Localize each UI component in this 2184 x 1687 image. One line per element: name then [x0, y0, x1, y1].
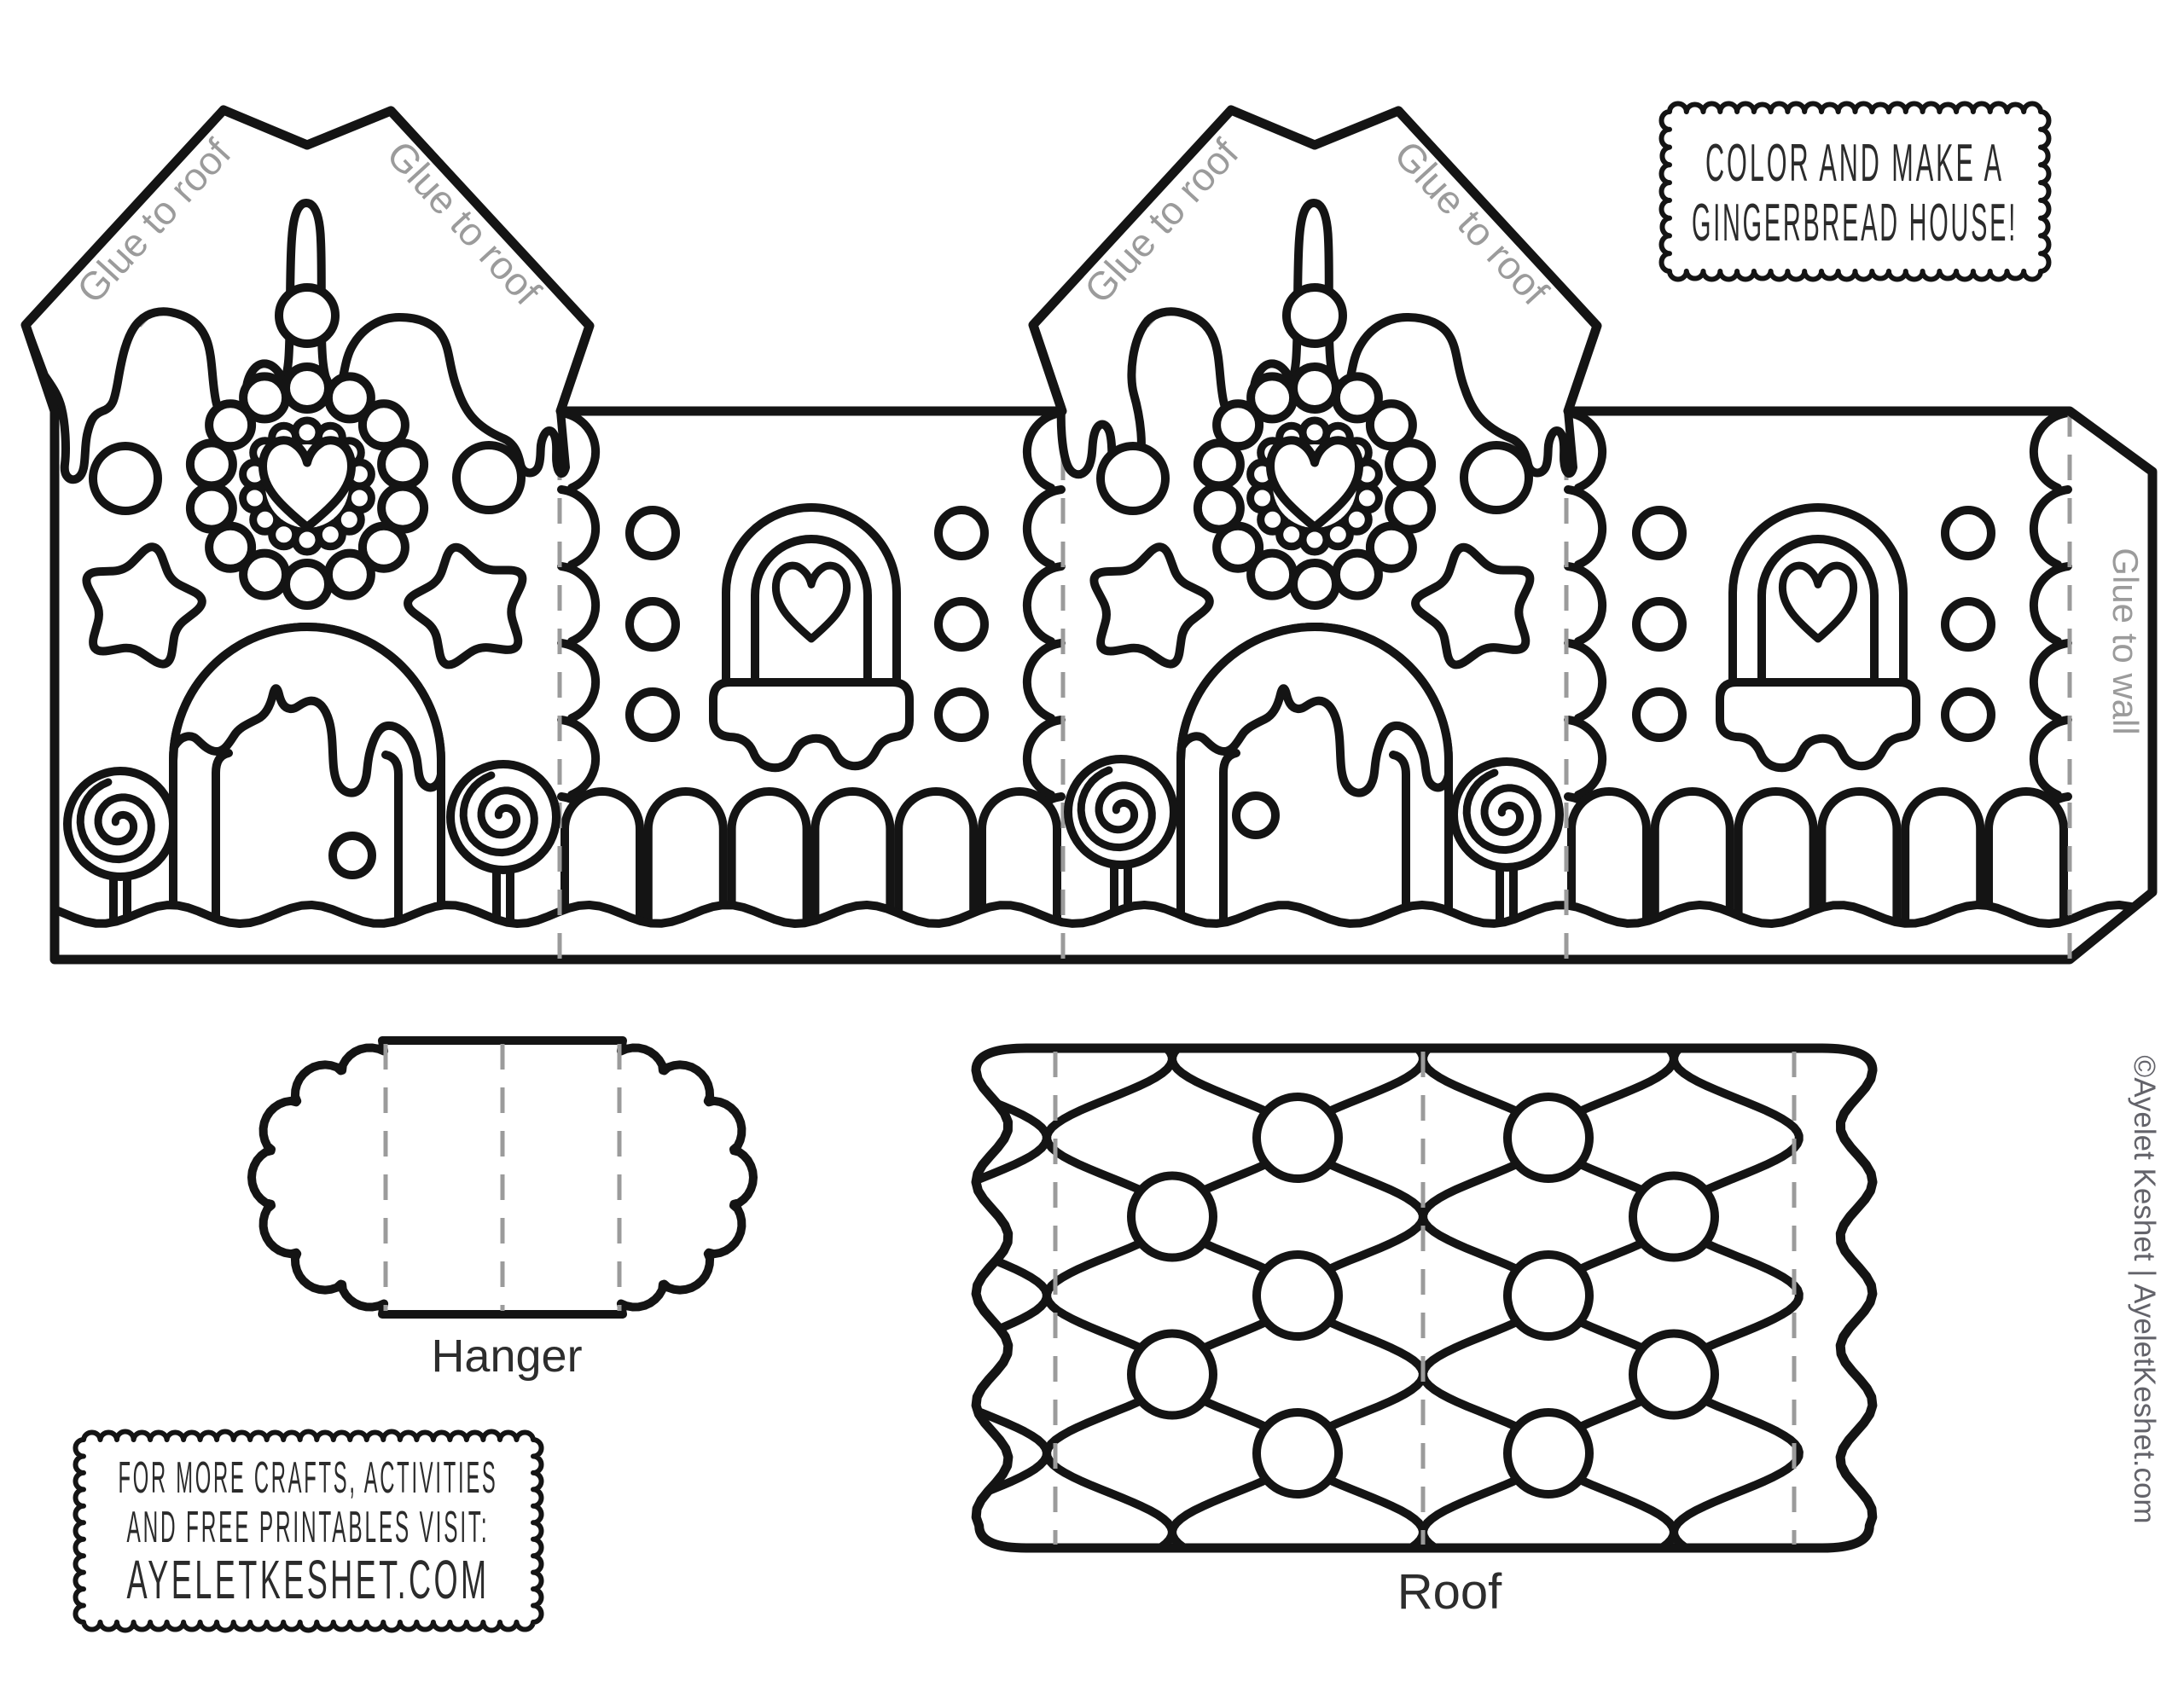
svg-text:Roof: Roof [1397, 1564, 1502, 1620]
svg-text:COLOR AND MAKE A: COLOR AND MAKE A [1705, 134, 2004, 193]
svg-text:FOR MORE CRAFTS, ACTIVITIES: FOR MORE CRAFTS, ACTIVITIES [119, 1453, 498, 1503]
svg-text:©Ayelet Keshet | AyeletKeshet.: ©Ayelet Keshet | AyeletKeshet.com [2128, 1055, 2161, 1523]
svg-text:Hanger: Hanger [431, 1330, 582, 1382]
svg-text:Glue to wall: Glue to wall [2106, 548, 2146, 734]
svg-text:AND FREE PRINTABLES VISIT:: AND FREE PRINTABLES VISIT: [127, 1503, 490, 1552]
svg-text:AYELETKESHET.COM: AYELETKESHET.COM [127, 1549, 490, 1610]
svg-text:GINGERBREAD HOUSE!: GINGERBREAD HOUSE! [1692, 194, 2018, 252]
